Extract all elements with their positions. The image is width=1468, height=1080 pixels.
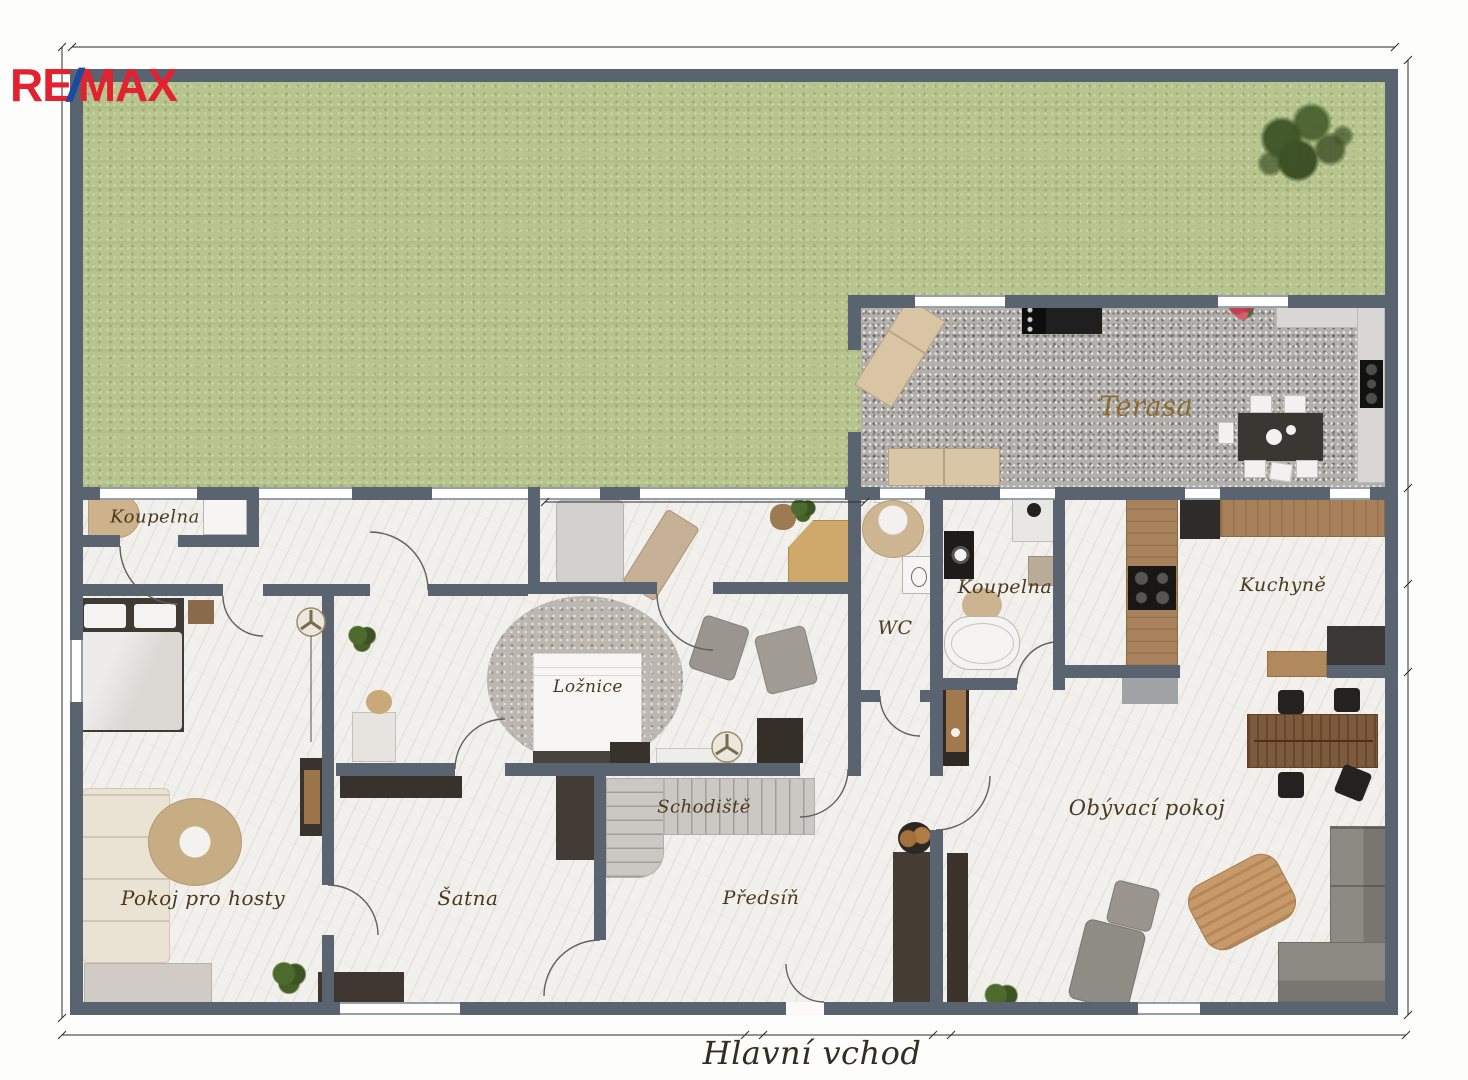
wall-study-left: [528, 487, 540, 594]
bedroom-bed: [533, 653, 642, 755]
dining-table: [1247, 714, 1378, 768]
dining-chair-1: [1278, 690, 1304, 714]
terrace-chair-2: [1284, 395, 1306, 413]
terrace-chair-3: [1244, 460, 1266, 478]
hallway-cabinet: [893, 852, 931, 1002]
guest-bench: [84, 963, 212, 1006]
wall-study-bottom-b: [713, 582, 861, 594]
dimension-tick: [1404, 56, 1412, 64]
builtin-desk: [943, 678, 969, 766]
living-cabinet: [947, 853, 968, 1003]
wall-strip-b: [263, 584, 370, 596]
terrace-plate-1: [1266, 429, 1282, 445]
dimension-tick: [1404, 580, 1412, 588]
toilet-rug: [862, 500, 924, 558]
wardrobe-cabinet-top: [340, 776, 462, 798]
main-entrance-opening: [786, 1002, 824, 1015]
builtin-desk-top: [946, 690, 966, 752]
dining-table-seam: [1254, 740, 1373, 742]
room-label-guest-room: Pokoj pro hosty: [121, 886, 285, 910]
house-floor: [83, 497, 1385, 1002]
room-label-staircase: Schodiště: [657, 797, 751, 818]
dimension-tick: [1404, 668, 1412, 676]
window: [1330, 487, 1370, 500]
wall-bath-top-bottom-a: [70, 535, 120, 547]
guest-bed-pillow-1: [84, 604, 126, 628]
wall-study-bottom-a: [528, 582, 657, 594]
room-label-wc: WC: [877, 617, 912, 639]
window: [259, 487, 352, 500]
window: [340, 1002, 460, 1015]
wall-bath-top-bottom-b: [178, 535, 259, 547]
patio-door: [880, 487, 925, 500]
window: [70, 640, 83, 702]
window: [1218, 295, 1288, 308]
guest-bed: [78, 598, 184, 732]
dimension-tick: [58, 1031, 66, 1039]
room-label-bathroom-top: Koupelna: [110, 507, 200, 528]
bedroom-dresser: [610, 742, 650, 763]
sun-lounger-2: [888, 448, 1000, 486]
guest-nightstand: [188, 600, 214, 624]
wall-wc-left: [848, 487, 861, 776]
desk-item-dot: [951, 728, 960, 737]
window: [100, 487, 197, 500]
wall-bathmid-bottom: [943, 678, 1017, 690]
kitchen-cooktop: [1128, 566, 1176, 610]
wall-guest-wardrobe-b: [322, 935, 334, 1002]
guest-bed-pillow-2: [134, 604, 176, 628]
dimension-tick: [1402, 1031, 1410, 1039]
window: [915, 295, 1005, 308]
logo-max: MAX: [78, 59, 177, 111]
dining-chair-3: [1278, 772, 1304, 798]
desk-plant: [790, 498, 816, 522]
wall-kitchen-stub: [1053, 665, 1180, 678]
terrace-cooktop: [1360, 360, 1383, 408]
bedroom-side-table: [352, 712, 396, 762]
room-label-living-room: Obývací pokoj: [1069, 796, 1226, 820]
wall-bedroom-bottom-b: [505, 763, 800, 776]
terrace-chair-1: [1250, 395, 1272, 413]
dining-chair-2: [1334, 688, 1360, 712]
room-label-bedroom: Ložnice: [553, 677, 623, 697]
wall-guest-wardrobe-a: [322, 596, 334, 885]
wall-wc-bottom-a: [861, 690, 880, 702]
window: [1138, 1002, 1200, 1015]
bedroom-plant: [348, 624, 376, 652]
bathtub-inner: [951, 623, 1014, 664]
floor-plan: Koupelna Terasa WC Koupelna Kuchyně Ložn…: [0, 0, 1468, 1080]
room-label-terrace: Terasa: [1099, 392, 1193, 423]
wall-terrace-left-b: [848, 432, 861, 487]
window: [432, 487, 528, 500]
wall-bathmid-right: [1053, 487, 1065, 690]
room-label-kitchen: Kuchyně: [1240, 574, 1327, 596]
sofa-horizontal: [1278, 942, 1386, 1002]
wall-wc-right: [930, 487, 943, 702]
logo-re: RE: [10, 59, 72, 111]
dimension-tick: [58, 1014, 66, 1022]
wall-outer-top: [70, 69, 1398, 82]
garden-tree: [1245, 92, 1360, 202]
washing-machine: [944, 531, 974, 579]
wardrobe-cabinet-right: [556, 776, 594, 860]
wall-outer-right: [1385, 69, 1398, 1015]
terrace-plate-2: [1286, 425, 1296, 435]
bedroom-bench: [656, 748, 734, 763]
wall-strip-c: [428, 584, 528, 596]
remax-logo: RE/MAX: [10, 58, 177, 112]
terrace-chair-5: [1296, 460, 1318, 478]
staircase-landing: [606, 778, 664, 878]
wall-hallway-living-b: [930, 830, 943, 1002]
guest-bed-duvet: [80, 632, 182, 730]
main-entrance-label: Hlavní vchod: [703, 1034, 922, 1072]
patio-door: [1000, 487, 1055, 500]
wall-strip-a: [70, 584, 223, 596]
dimension-tick: [1391, 43, 1399, 51]
guest-round-rug: [148, 798, 242, 886]
dimension-tick: [929, 1031, 937, 1039]
bedroom-chair: [366, 690, 392, 714]
wall-wardrobe-hallway: [594, 775, 606, 940]
window: [1185, 487, 1220, 500]
wall-terrace-left-a: [848, 295, 861, 350]
window: [640, 487, 845, 500]
guest-dresser-wood: [304, 770, 320, 824]
dimension-tick: [1404, 484, 1412, 492]
kitchen-bench: [1267, 651, 1327, 677]
room-label-hallway: Předsíň: [723, 887, 800, 909]
wall-wc-bottom-b: [920, 690, 943, 702]
vanity-sink-dot: [1027, 503, 1041, 517]
wc-sink-basin: [911, 567, 927, 587]
wall-hallway-living-a: [930, 702, 943, 776]
hallway-stool: [898, 822, 932, 854]
wall-bedroom-bottom-a: [336, 763, 455, 776]
room-label-wardrobe: Šatna: [438, 886, 499, 910]
tv-cabinet: [757, 718, 803, 763]
window: [540, 487, 600, 500]
wall-kitchen-living: [1327, 665, 1398, 678]
dimension-tick: [68, 43, 76, 51]
guest-plant: [272, 960, 306, 994]
bathtub: [944, 616, 1020, 670]
kitchen-fridge: [1122, 678, 1178, 704]
dimension-tick: [947, 1031, 955, 1039]
wc-sink: [902, 556, 933, 594]
dimension-tick: [58, 43, 66, 51]
study-armchair: [556, 500, 624, 584]
kitchen-sideboard: [1327, 626, 1393, 666]
terrace-chair-6: [1218, 422, 1234, 444]
terrace-chair-4: [1269, 462, 1293, 483]
dimension-tick: [1404, 1011, 1412, 1019]
terrace-table: [1238, 413, 1323, 461]
room-label-bathroom-middle: Koupelna: [958, 576, 1052, 598]
